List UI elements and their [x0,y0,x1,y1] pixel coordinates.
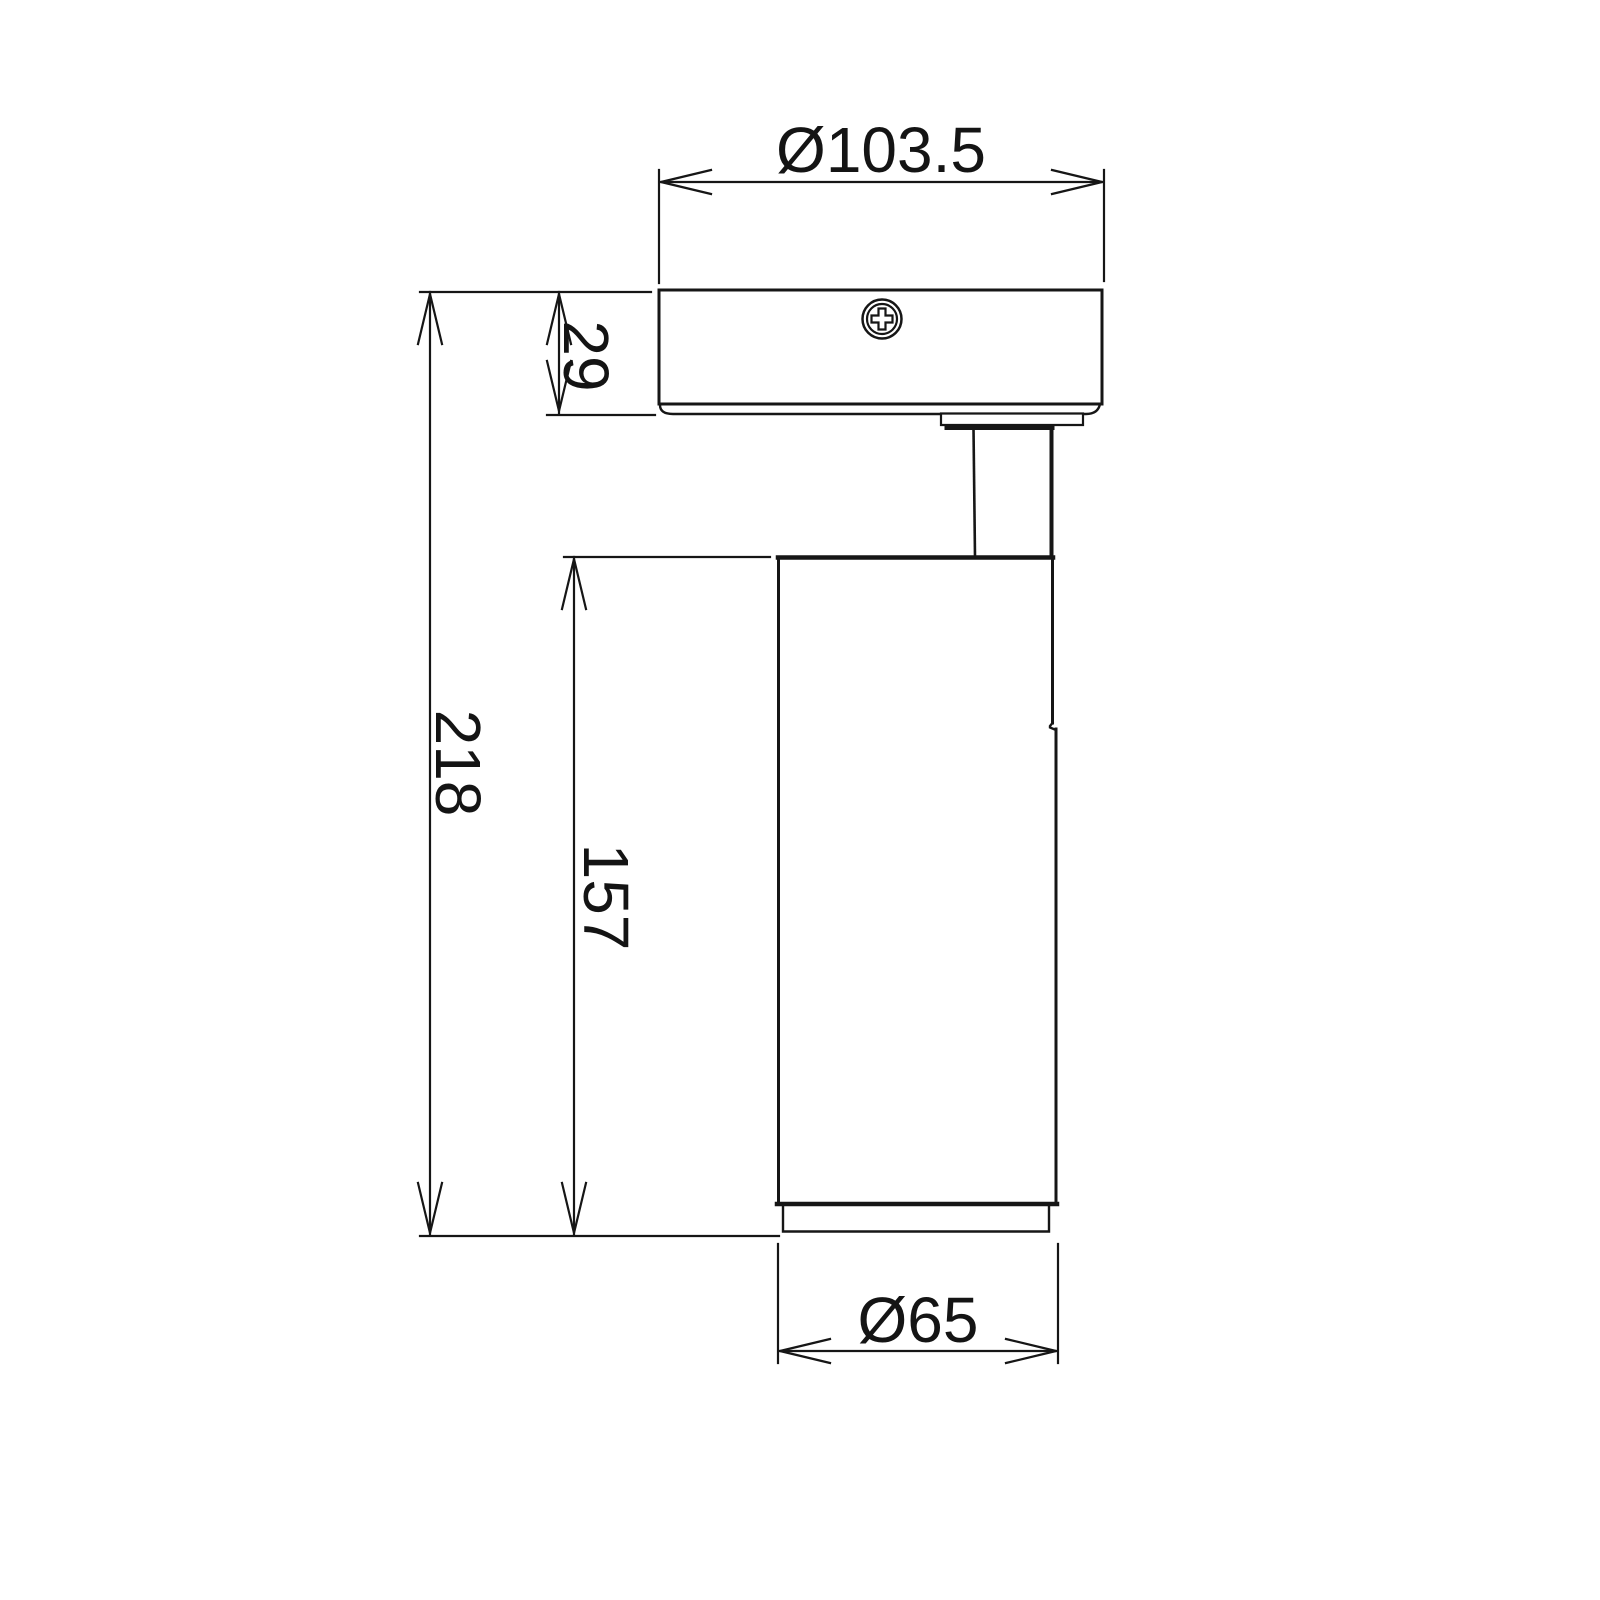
dimension-label-overall-height: 218 [422,710,494,817]
fixture-canopy [659,290,1102,414]
dimension-label-canopy-diameter: Ø103.5 [776,114,986,186]
dimension-label-body-height: 157 [570,844,642,951]
dimension-label-canopy-height: 29 [550,320,622,391]
dim-body-height: 157 [562,557,770,1235]
dim-body-diameter: Ø65 [778,1244,1058,1363]
technical-drawing-spotlight: Ø103.5 29 218 157 [0,0,1600,1600]
stem-left-edge [974,428,976,557]
drawing-canvas: Ø103.5 29 218 157 [0,0,1600,1600]
dim-overall-height: 218 [418,292,779,1236]
fixture-lamp-body [777,557,1057,1232]
dimension-label-body-diameter: Ø65 [858,1284,979,1356]
body-bottom-trim-ring [783,1206,1049,1232]
dim-canopy-diameter: Ø103.5 [659,114,1104,283]
stem-mount-bracket [941,414,1083,426]
dim-canopy-height: 29 [547,292,655,415]
fixture-stem [941,414,1083,558]
canopy-body-outline [659,290,1102,404]
